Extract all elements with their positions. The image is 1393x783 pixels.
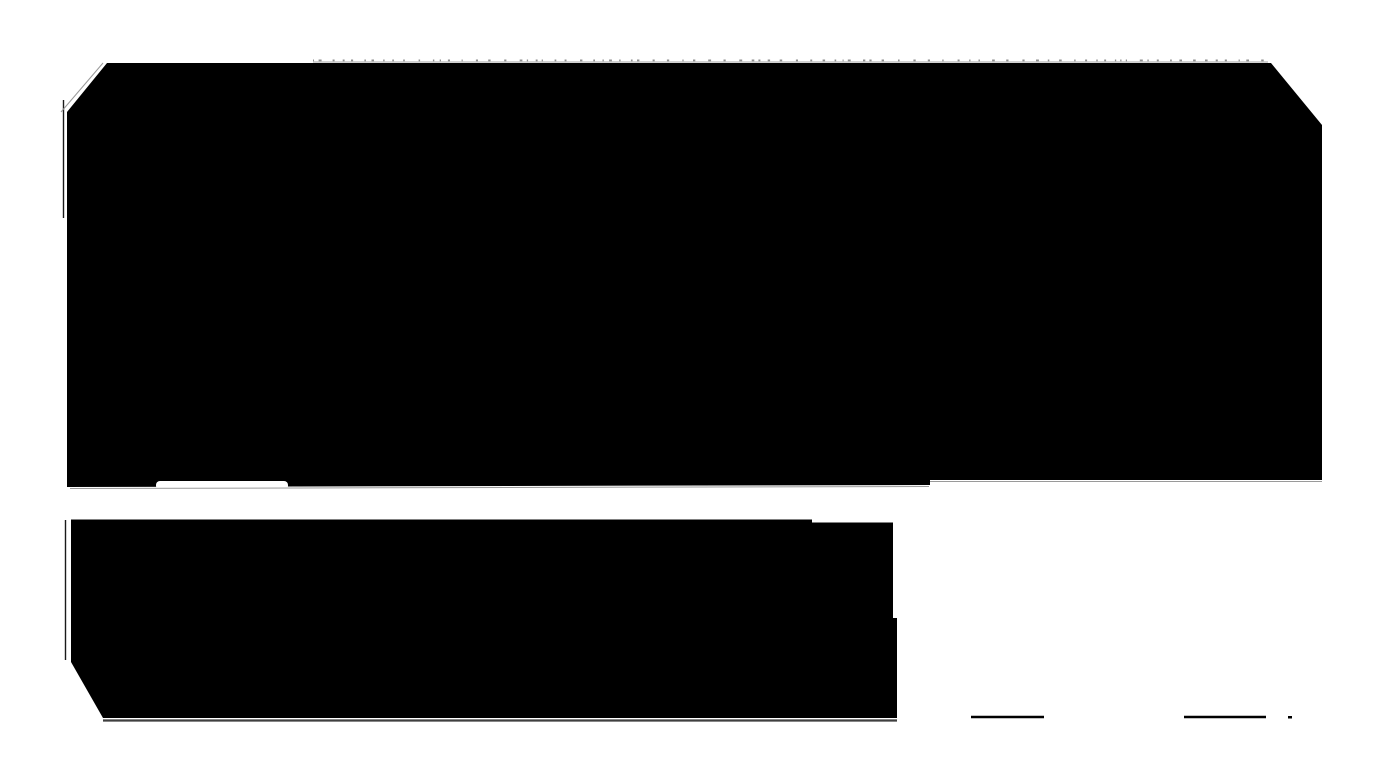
dash-mark xyxy=(992,60,995,62)
dash-mark xyxy=(476,60,478,62)
dash-mark xyxy=(958,60,960,62)
dash-mark xyxy=(319,60,322,62)
dash-mark xyxy=(392,60,394,62)
dash-mark xyxy=(1239,60,1240,62)
dash-mark xyxy=(542,60,543,62)
dash-mark xyxy=(848,60,851,62)
dash-mark xyxy=(752,60,755,62)
dash-mark xyxy=(1036,60,1039,62)
dash-mark xyxy=(796,60,798,62)
dash-mark xyxy=(488,60,490,62)
dash-mark xyxy=(1048,60,1050,62)
dash-mark xyxy=(1147,60,1148,62)
dash-mark xyxy=(1126,60,1127,62)
dash-mark xyxy=(823,60,826,62)
dash-mark xyxy=(869,60,871,62)
dash-mark xyxy=(403,60,405,62)
dash-mark xyxy=(1104,60,1106,62)
dash-mark xyxy=(1022,60,1024,62)
screenshot-root xyxy=(0,0,1393,783)
dash-mark xyxy=(372,60,375,62)
dash-mark xyxy=(1157,60,1159,62)
dash-mark xyxy=(609,60,612,62)
dash-mark xyxy=(1115,60,1116,62)
top-black-block xyxy=(67,63,1322,487)
dash-mark xyxy=(343,60,345,62)
dash-mark xyxy=(1225,60,1227,62)
dash-mark xyxy=(863,60,865,62)
dash-mark xyxy=(433,60,434,62)
dash-mark xyxy=(913,60,915,62)
dash-mark xyxy=(1216,60,1218,62)
dash-mark xyxy=(1170,60,1172,62)
dash-mark xyxy=(882,60,884,62)
dash-mark xyxy=(969,60,970,62)
dash-mark xyxy=(835,60,837,62)
dash-mark xyxy=(631,60,633,62)
dash-mark xyxy=(942,60,943,62)
dash-mark xyxy=(979,60,980,62)
dash-mark xyxy=(780,60,783,62)
dash-mark xyxy=(637,60,639,62)
top-edge-dash-row xyxy=(313,60,1264,62)
dash-mark xyxy=(462,60,463,62)
dash-mark xyxy=(1140,60,1143,62)
dash-mark xyxy=(580,60,582,62)
dash-mark xyxy=(724,60,726,62)
dash-mark xyxy=(708,60,711,62)
dash-mark xyxy=(383,60,384,62)
dash-mark xyxy=(520,60,523,62)
dash-mark xyxy=(504,60,506,62)
screenshot-canvas xyxy=(0,0,1393,783)
dash-mark xyxy=(1096,60,1097,62)
dash-mark xyxy=(1120,60,1121,62)
dash-mark xyxy=(536,60,538,62)
dash-mark xyxy=(1006,60,1008,62)
dash-mark xyxy=(351,60,353,62)
dash-mark xyxy=(758,60,760,62)
bottom-black-block xyxy=(71,520,897,719)
dash-mark xyxy=(810,60,812,62)
dash-mark xyxy=(693,60,695,62)
dash-mark xyxy=(1246,60,1249,62)
dash-mark xyxy=(1179,60,1182,62)
footer-dot xyxy=(1288,716,1292,719)
dash-mark xyxy=(527,60,528,62)
dash-mark xyxy=(313,60,314,62)
dash-mark xyxy=(768,60,770,62)
dash-mark xyxy=(1074,60,1075,62)
dash-mark xyxy=(565,60,567,62)
dash-mark xyxy=(419,60,421,62)
dash-mark xyxy=(555,60,557,62)
dash-mark xyxy=(843,60,844,62)
dash-mark xyxy=(440,60,441,62)
dash-mark xyxy=(1085,60,1087,62)
dash-mark xyxy=(653,60,655,62)
dash-mark xyxy=(739,60,742,62)
dash-mark xyxy=(619,60,620,62)
dash-mark xyxy=(364,60,366,62)
dash-mark xyxy=(1059,60,1062,62)
dash-mark xyxy=(898,60,900,62)
dash-mark xyxy=(1193,60,1196,62)
dash-mark xyxy=(1261,60,1264,62)
dash-mark xyxy=(593,60,595,62)
dash-mark xyxy=(667,60,669,62)
dash-mark xyxy=(448,60,450,62)
dash-mark xyxy=(682,60,683,62)
dash-mark xyxy=(333,60,335,62)
dash-mark xyxy=(928,60,930,62)
dash-mark xyxy=(1205,60,1208,62)
dash-mark xyxy=(603,60,604,62)
